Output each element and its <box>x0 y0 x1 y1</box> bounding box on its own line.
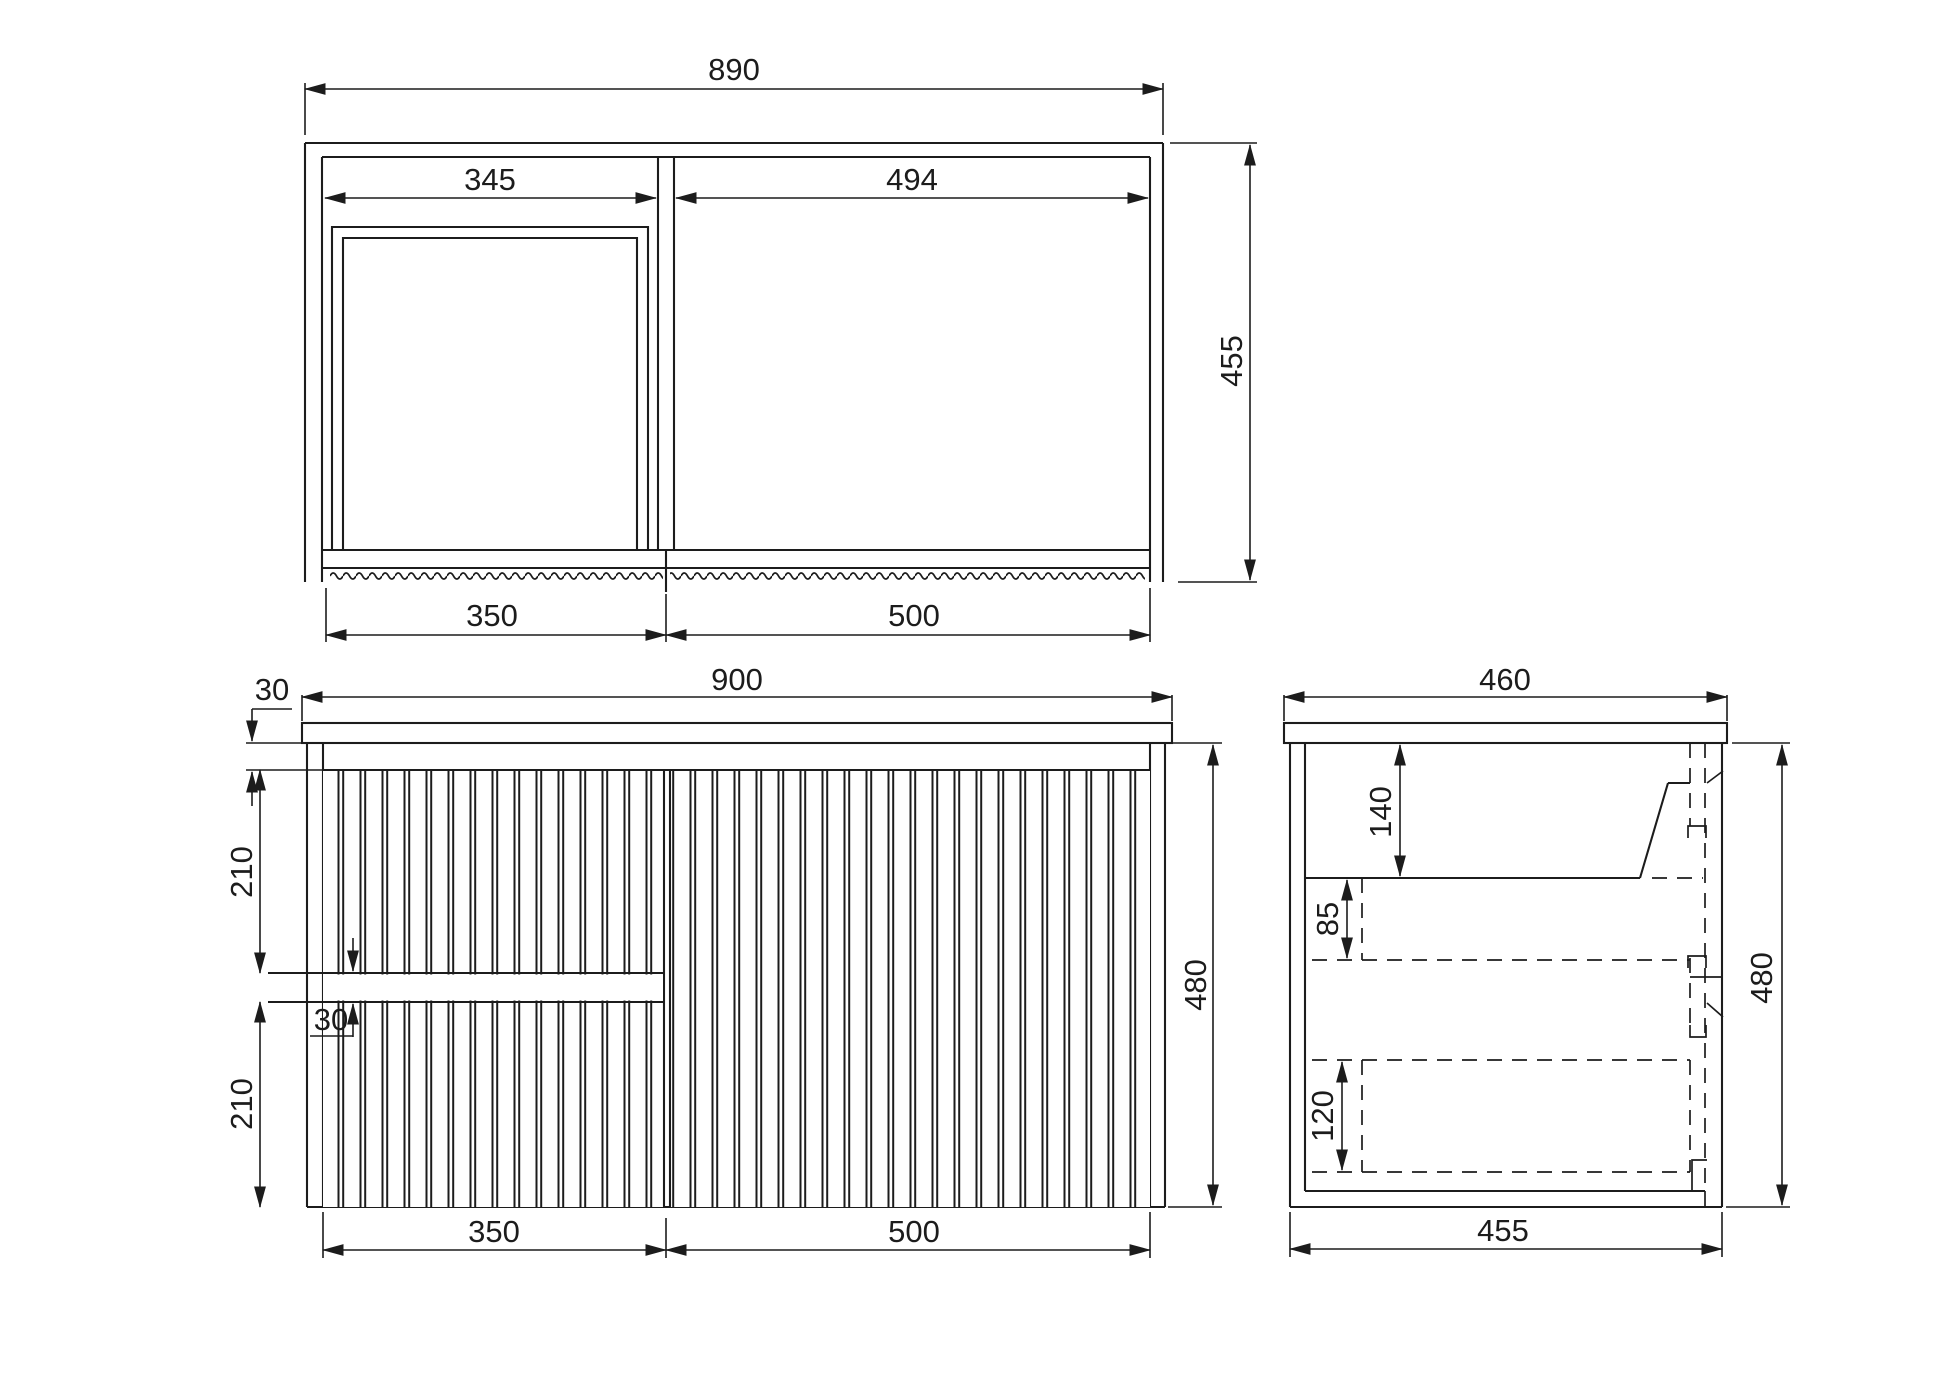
front-height-dimension: 480 <box>1168 743 1222 1207</box>
front-top-rail-label: 30 <box>255 672 289 707</box>
front-lower-drawer-label: 210 <box>224 1078 259 1130</box>
technical-drawing-canvas: 890 345 494 455 350 500 <box>0 0 1946 1375</box>
side-countertop <box>1284 723 1727 743</box>
front-right-door-flutes <box>670 770 1150 1207</box>
side-view: 460 140 85 120 455 480 <box>1284 662 1790 1257</box>
top-opening-left-dimension: 345 <box>325 162 656 198</box>
side-runner-offset-label: 85 <box>1310 902 1345 936</box>
front-drawer-gap <box>268 973 664 1002</box>
side-drawer-box-label: 120 <box>1305 1090 1340 1142</box>
front-upper-drawer-label: 210 <box>224 846 259 898</box>
front-overall-width-dimension: 900 <box>302 662 1172 721</box>
top-door-left-label: 350 <box>466 598 518 633</box>
top-door-width-dimensions: 350 500 <box>326 588 1150 642</box>
side-depth-label: 460 <box>1479 662 1531 697</box>
top-opening-right-label: 494 <box>886 162 938 197</box>
top-opening-right-dimension: 494 <box>676 162 1148 198</box>
top-depth-dimension: 455 <box>1170 143 1257 582</box>
partition-divider <box>658 157 674 592</box>
sink-cutout-inner <box>343 238 637 550</box>
top-depth-label: 455 <box>1214 335 1249 387</box>
side-upper-drawer-hidden <box>1312 878 1690 960</box>
side-bottom-depth-dimension: 455 <box>1290 1212 1722 1257</box>
front-edge-wave-right <box>670 570 1145 582</box>
front-lower-drawer-dimension: 210 <box>224 1002 260 1207</box>
front-door-width-dimensions: 350 500 <box>323 1212 1150 1258</box>
side-lower-drawer-hidden <box>1312 1060 1690 1172</box>
top-overall-width-label: 890 <box>708 52 760 87</box>
side-basin-depth-label: 140 <box>1363 786 1398 838</box>
top-view-outline <box>305 143 1163 582</box>
side-height-dimension: 480 <box>1726 743 1790 1207</box>
top-door-right-label: 500 <box>888 598 940 633</box>
front-height-label: 480 <box>1178 959 1213 1011</box>
top-view: 890 345 494 455 350 500 <box>305 52 1257 642</box>
side-carcass <box>1290 743 1722 1207</box>
front-overall-width-label: 900 <box>711 662 763 697</box>
front-door-right-label: 500 <box>888 1214 940 1249</box>
drawing-sheet: 890 345 494 455 350 500 <box>0 0 1946 1375</box>
front-view: 900 30 210 30 210 <box>224 662 1222 1258</box>
front-top-rail-dimension: 30 <box>246 672 323 806</box>
side-basin-depth-dimension: 140 <box>1363 745 1400 876</box>
front-countertop <box>302 723 1172 743</box>
side-bottom-depth-label: 455 <box>1477 1213 1529 1248</box>
side-depth-dimension: 460 <box>1284 662 1727 721</box>
front-door-left-label: 350 <box>468 1214 520 1249</box>
side-height-label: 480 <box>1744 952 1779 1004</box>
front-drawer-gap-label: 30 <box>314 1002 348 1037</box>
sink-cutout-outer <box>332 227 648 550</box>
side-drawer-box-dimension: 120 <box>1305 1062 1342 1170</box>
side-runner-offset-dimension: 85 <box>1310 880 1347 958</box>
top-overall-width-dimension: 890 <box>305 52 1163 135</box>
front-upper-drawer-dimension: 210 <box>224 770 260 973</box>
front-door-divider <box>664 770 670 1207</box>
front-edge-wave-left <box>330 570 663 582</box>
side-hidden-back-lines <box>1690 743 1705 1207</box>
top-opening-left-label: 345 <box>464 162 516 197</box>
